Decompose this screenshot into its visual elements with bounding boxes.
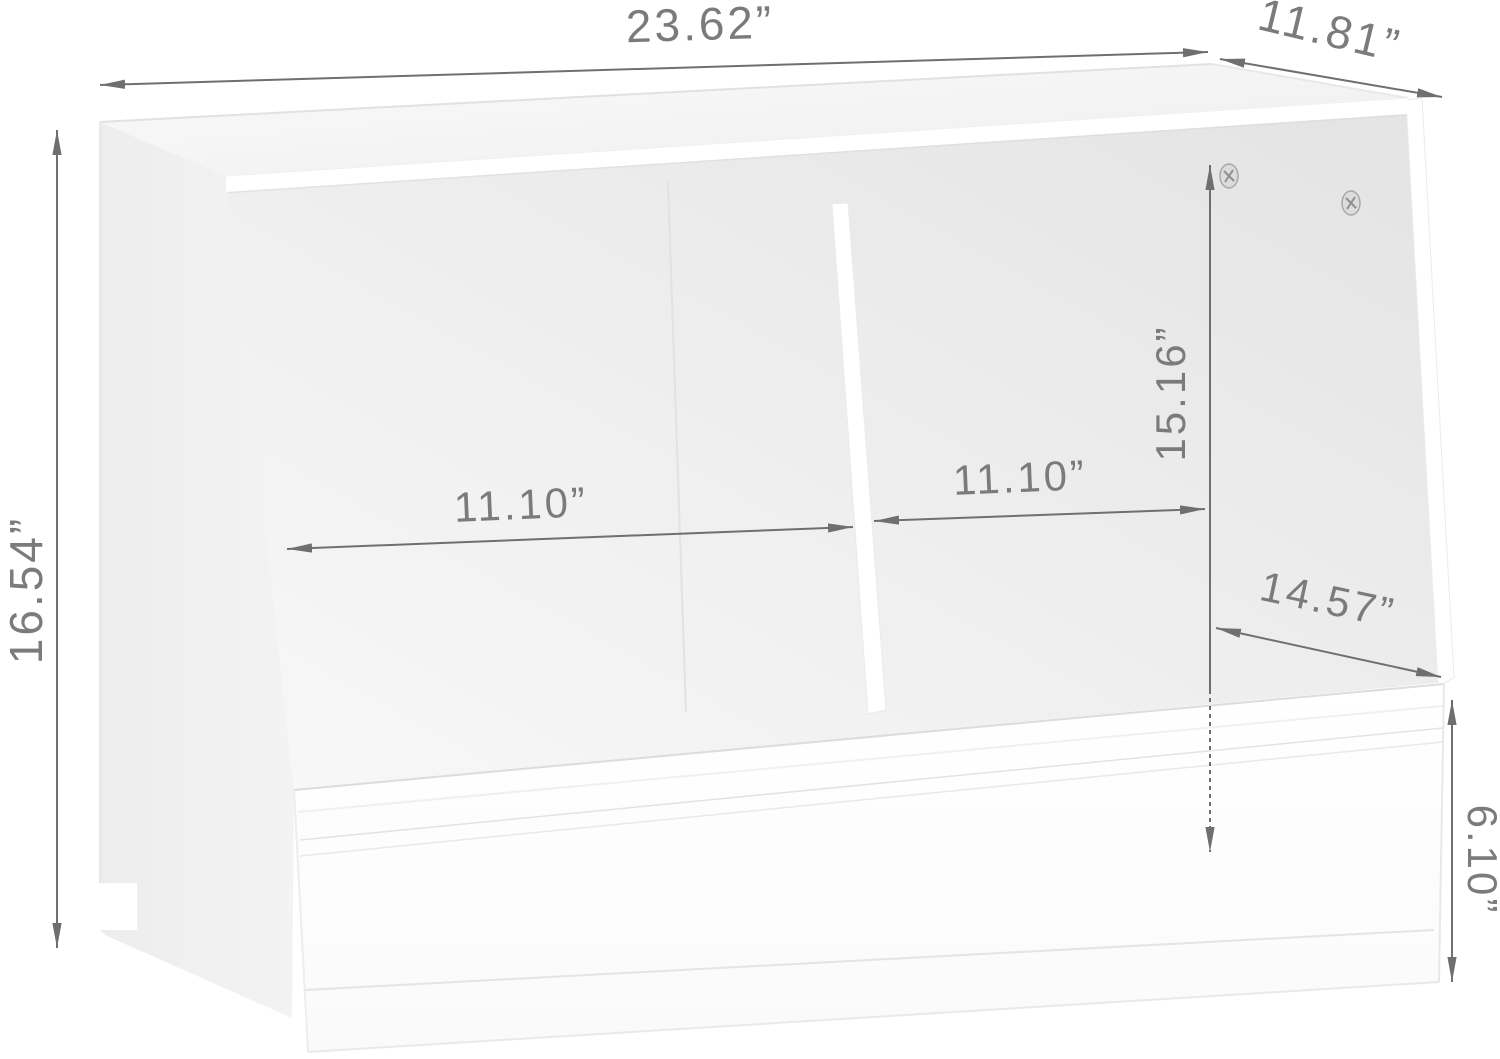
dim-label-overall-height: 16.54” xyxy=(0,516,53,664)
screw-icon xyxy=(1220,164,1238,188)
dim-label-left-cubby-width: 11.10” xyxy=(453,478,589,532)
dim-label-right-cubby-width: 11.10” xyxy=(952,451,1088,505)
dim-label-bin-height: 6.10” xyxy=(1458,805,1500,916)
foot-notch xyxy=(99,883,137,930)
furniture-illustration xyxy=(0,0,1500,1059)
dim-label-interior-height: 15.16” xyxy=(1147,324,1195,461)
product-dimension-diagram: 23.62” 11.81” 16.54” 11.10” 11.10” 15.16… xyxy=(0,0,1500,1059)
dim-label-top-width: 23.62” xyxy=(625,0,775,53)
screw-icon xyxy=(1342,191,1360,215)
